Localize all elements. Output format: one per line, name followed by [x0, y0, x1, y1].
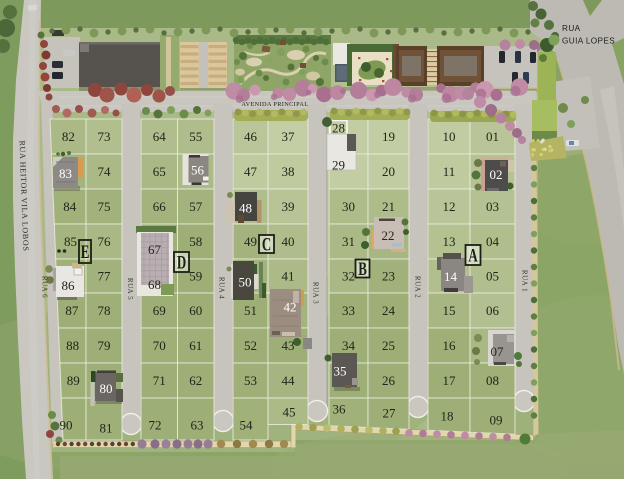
svg-text:73: 73: [98, 129, 111, 144]
svg-text:23: 23: [382, 269, 395, 284]
svg-text:34: 34: [342, 338, 356, 353]
svg-text:20: 20: [382, 164, 395, 179]
svg-text:65: 65: [153, 164, 166, 179]
svg-text:57: 57: [189, 199, 203, 214]
svg-text:69: 69: [153, 303, 166, 318]
svg-text:49: 49: [244, 234, 257, 249]
svg-text:41: 41: [282, 269, 295, 284]
svg-text:26: 26: [382, 373, 396, 388]
svg-text:C: C: [262, 234, 271, 255]
svg-text:E: E: [81, 242, 90, 263]
svg-text:52: 52: [244, 338, 257, 353]
svg-text:24: 24: [382, 303, 396, 318]
svg-text:01: 01: [486, 129, 499, 144]
svg-text:07: 07: [491, 344, 505, 359]
svg-text:RUA 4: RUA 4: [218, 277, 226, 299]
svg-text:46: 46: [244, 129, 258, 144]
svg-text:85: 85: [64, 234, 77, 249]
svg-text:13: 13: [443, 234, 456, 249]
svg-text:58: 58: [189, 234, 202, 249]
svg-text:83: 83: [59, 166, 72, 181]
svg-text:35: 35: [334, 364, 347, 379]
svg-text:56: 56: [191, 163, 205, 178]
svg-text:40: 40: [282, 234, 295, 249]
svg-text:29: 29: [332, 158, 345, 173]
svg-text:67: 67: [148, 242, 162, 257]
svg-text:87: 87: [65, 303, 79, 318]
svg-text:18: 18: [441, 409, 454, 424]
svg-text:60: 60: [189, 303, 202, 318]
svg-text:D: D: [177, 252, 186, 273]
svg-text:64: 64: [153, 129, 167, 144]
svg-text:77: 77: [98, 269, 112, 284]
svg-text:36: 36: [333, 402, 347, 417]
svg-text:47: 47: [244, 164, 258, 179]
svg-text:31: 31: [342, 234, 355, 249]
svg-text:89: 89: [67, 373, 80, 388]
svg-text:04: 04: [486, 234, 500, 249]
svg-text:30: 30: [342, 199, 355, 214]
svg-text:81: 81: [100, 421, 113, 436]
svg-text:GUIA LOPES: GUIA LOPES: [562, 37, 615, 46]
svg-text:17: 17: [443, 373, 457, 388]
svg-text:37: 37: [282, 129, 296, 144]
svg-text:51: 51: [244, 303, 257, 318]
svg-text:28: 28: [332, 121, 345, 136]
svg-text:16: 16: [443, 338, 457, 353]
svg-text:90: 90: [60, 418, 73, 433]
svg-text:74: 74: [98, 164, 112, 179]
svg-text:71: 71: [153, 373, 166, 388]
svg-text:RUA 3: RUA 3: [312, 282, 320, 304]
svg-text:82: 82: [62, 129, 75, 144]
svg-text:14: 14: [444, 269, 458, 284]
svg-text:66: 66: [153, 199, 167, 214]
svg-text:86: 86: [62, 278, 76, 293]
svg-text:63: 63: [191, 418, 204, 433]
svg-text:39: 39: [282, 199, 295, 214]
svg-text:33: 33: [342, 303, 355, 318]
svg-text:76: 76: [98, 234, 112, 249]
svg-text:45: 45: [283, 405, 296, 420]
svg-text:B: B: [358, 259, 367, 280]
svg-text:11: 11: [443, 164, 456, 179]
svg-text:59: 59: [189, 269, 202, 284]
svg-text:88: 88: [66, 338, 79, 353]
svg-text:RUA: RUA: [562, 24, 581, 33]
svg-text:62: 62: [189, 373, 202, 388]
svg-text:06: 06: [486, 303, 500, 318]
svg-text:55: 55: [189, 129, 202, 144]
svg-text:10: 10: [443, 129, 456, 144]
svg-text:09: 09: [490, 413, 503, 428]
svg-text:38: 38: [282, 164, 295, 179]
svg-text:32: 32: [342, 269, 355, 284]
svg-text:RUA 6: RUA 6: [41, 276, 49, 298]
svg-text:19: 19: [382, 129, 395, 144]
svg-text:25: 25: [382, 338, 395, 353]
svg-text:79: 79: [98, 338, 111, 353]
svg-text:44: 44: [282, 373, 296, 388]
svg-text:84: 84: [63, 199, 77, 214]
svg-text:02: 02: [490, 167, 503, 182]
svg-text:AVENIDA PRINCIPAL: AVENIDA PRINCIPAL: [241, 101, 308, 108]
svg-text:70: 70: [153, 338, 166, 353]
svg-text:03: 03: [486, 199, 499, 214]
svg-text:72: 72: [149, 418, 162, 433]
svg-text:78: 78: [98, 303, 111, 318]
svg-text:42: 42: [284, 300, 297, 315]
svg-text:RUA 5: RUA 5: [126, 278, 134, 300]
svg-text:21: 21: [382, 199, 395, 214]
svg-text:A: A: [468, 245, 478, 266]
svg-text:53: 53: [244, 373, 257, 388]
svg-text:05: 05: [486, 269, 499, 284]
svg-text:12: 12: [443, 199, 456, 214]
svg-text:80: 80: [100, 381, 113, 396]
svg-text:22: 22: [382, 228, 395, 243]
svg-text:43: 43: [282, 338, 295, 353]
svg-text:15: 15: [443, 303, 456, 318]
svg-text:RUA 2: RUA 2: [414, 276, 422, 298]
svg-text:27: 27: [383, 406, 397, 421]
svg-text:54: 54: [240, 418, 254, 433]
svg-text:61: 61: [189, 338, 202, 353]
svg-text:75: 75: [98, 199, 111, 214]
svg-text:08: 08: [486, 373, 499, 388]
svg-text:50: 50: [239, 275, 252, 290]
svg-text:RUA 1: RUA 1: [521, 270, 529, 292]
svg-text:48: 48: [239, 201, 252, 216]
svg-text:68: 68: [148, 277, 161, 292]
